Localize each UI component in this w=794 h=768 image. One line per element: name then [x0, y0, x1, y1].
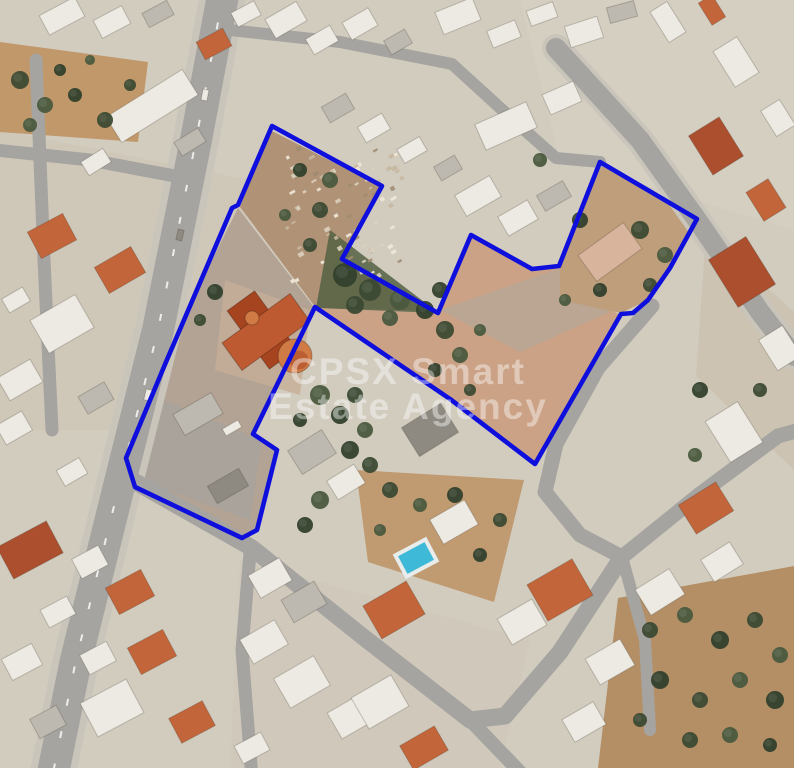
tree-highlight: [196, 316, 202, 322]
tree-highlight: [56, 66, 62, 72]
tree-highlight: [645, 280, 652, 287]
tree-highlight: [99, 114, 107, 122]
church-dome: [245, 311, 259, 325]
tree-highlight: [653, 673, 662, 682]
tree-highlight: [535, 155, 542, 162]
tree-highlight: [690, 450, 697, 457]
tree-highlight: [765, 740, 772, 747]
tree-highlight: [13, 73, 22, 82]
tree-highlight: [314, 204, 322, 212]
tree-highlight: [39, 99, 47, 107]
tree-highlight: [635, 715, 642, 722]
tree-highlight: [713, 633, 722, 642]
tree-highlight: [476, 326, 482, 332]
tree-highlight: [684, 734, 692, 742]
watermark: CPSX SmartEstate Agency: [268, 351, 548, 427]
watermark-line2: Estate Agency: [268, 386, 548, 427]
tree-highlight: [336, 266, 348, 278]
tree-highlight: [364, 459, 372, 467]
tree-highlight: [25, 120, 32, 127]
tree-highlight: [749, 614, 757, 622]
tree-highlight: [755, 385, 762, 392]
tree-highlight: [299, 519, 307, 527]
tree-highlight: [734, 674, 742, 682]
tree-highlight: [313, 493, 322, 502]
tree-highlight: [126, 81, 132, 87]
tree-highlight: [295, 165, 302, 172]
tree-highlight: [343, 443, 352, 452]
tree-highlight: [86, 56, 91, 61]
tree-highlight: [495, 515, 502, 522]
tree-highlight: [679, 609, 687, 617]
tree-highlight: [724, 729, 732, 737]
satellite-map: CPSX SmartEstate Agency: [0, 0, 794, 768]
tree-highlight: [305, 240, 312, 247]
tree-highlight: [348, 298, 357, 307]
tree-highlight: [449, 489, 457, 497]
tree-highlight: [324, 174, 332, 182]
tree-highlight: [694, 384, 702, 392]
tree-highlight: [281, 211, 287, 217]
tree-highlight: [659, 249, 667, 257]
tree-highlight: [384, 484, 392, 492]
tree-highlight: [438, 323, 447, 332]
tree-highlight: [475, 550, 482, 557]
tree-highlight: [595, 285, 602, 292]
tree-highlight: [633, 223, 642, 232]
tree-highlight: [209, 286, 217, 294]
tree-highlight: [644, 624, 652, 632]
tree-highlight: [70, 90, 77, 97]
tree-highlight: [694, 694, 702, 702]
tree-highlight: [384, 312, 392, 320]
tree-highlight: [774, 649, 782, 657]
tree-highlight: [362, 282, 373, 293]
tree-highlight: [415, 500, 422, 507]
satellite-map-image: CPSX SmartEstate Agency: [0, 0, 794, 768]
tree-highlight: [768, 693, 777, 702]
tree-highlight: [561, 296, 567, 302]
tree-highlight: [376, 526, 382, 532]
tree-highlight: [434, 284, 442, 292]
